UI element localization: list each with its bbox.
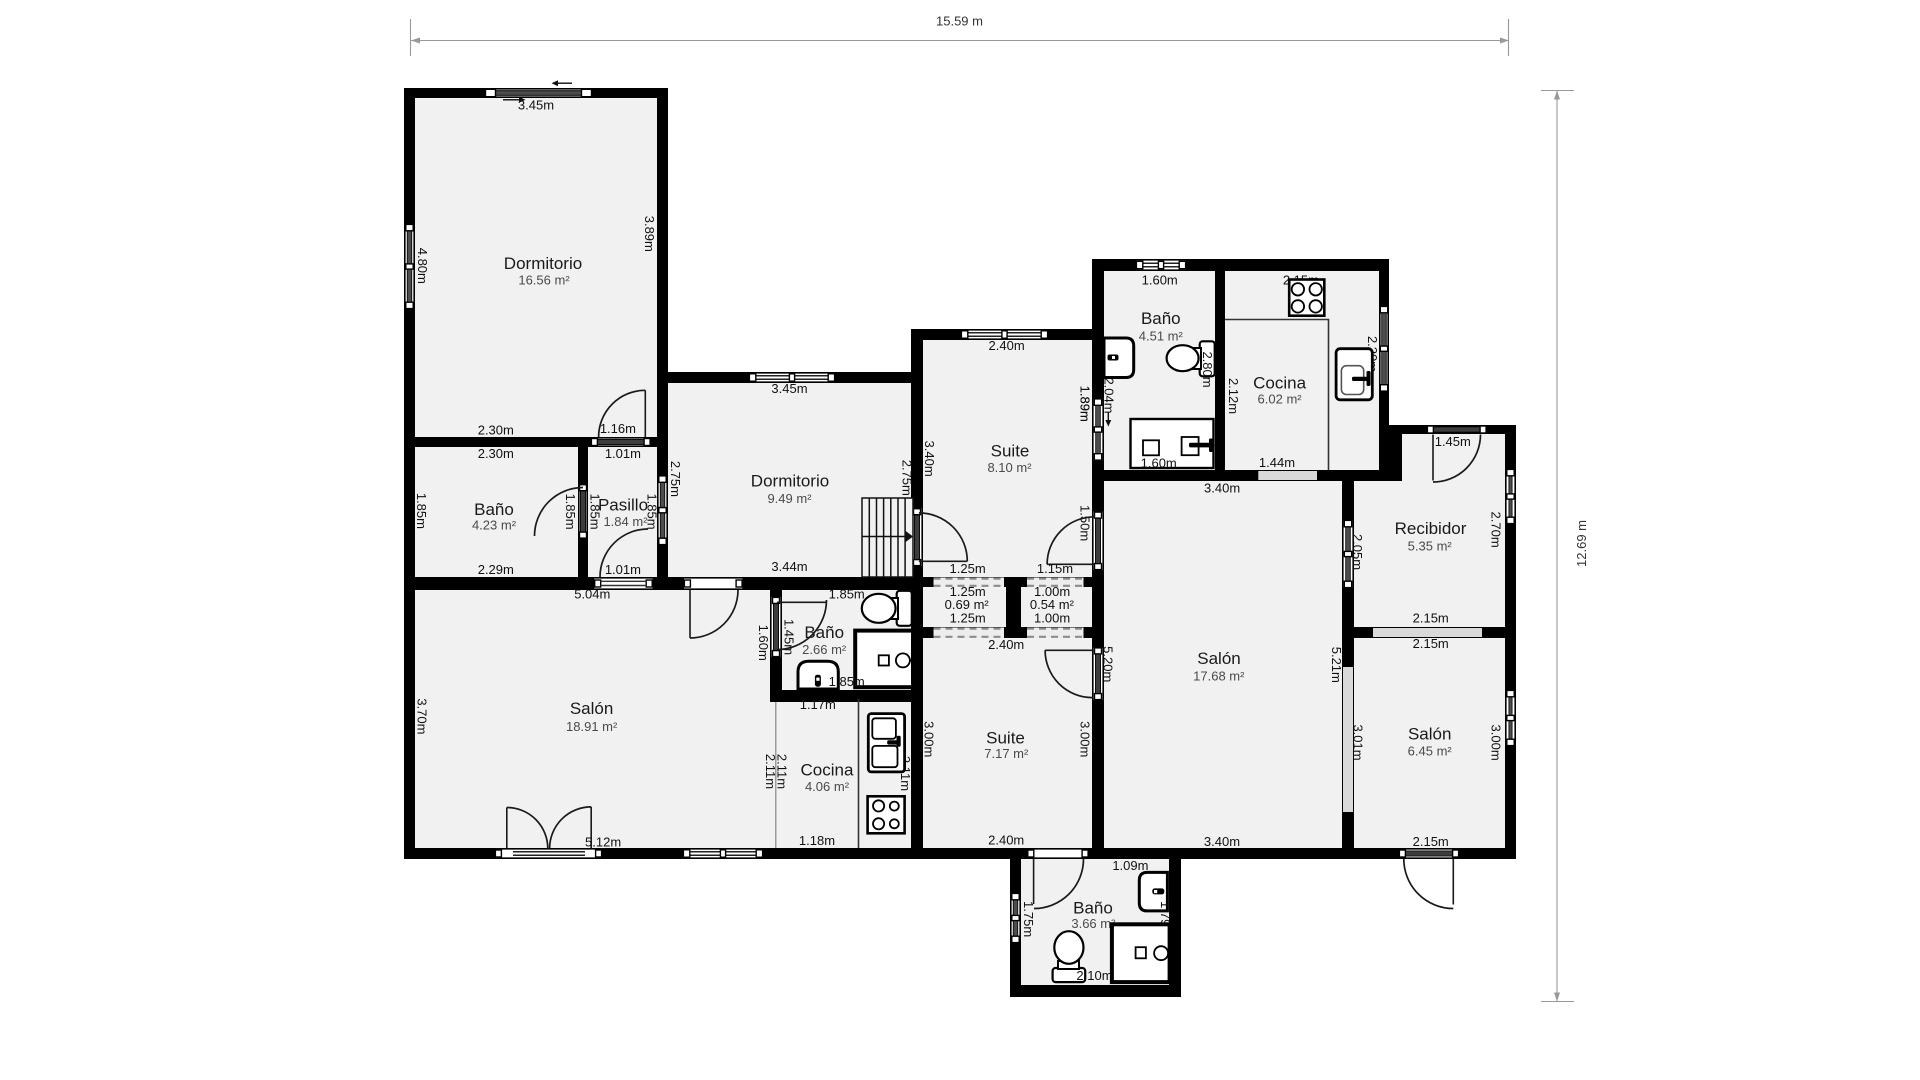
svg-text:1.60m: 1.60m bbox=[756, 625, 771, 661]
svg-text:2.75m: 2.75m bbox=[668, 461, 683, 497]
svg-text:Suite: Suite bbox=[986, 729, 1025, 748]
svg-text:1.75m: 1.75m bbox=[1021, 901, 1036, 937]
svg-text:1.09m: 1.09m bbox=[1112, 858, 1148, 873]
svg-text:1.01m: 1.01m bbox=[605, 446, 641, 461]
svg-text:5.12m: 5.12m bbox=[585, 834, 621, 849]
svg-text:1.85m: 1.85m bbox=[645, 493, 660, 529]
svg-text:3.66 m²: 3.66 m² bbox=[1071, 916, 1116, 931]
svg-text:3.70m: 3.70m bbox=[415, 698, 430, 734]
svg-text:1.60m: 1.60m bbox=[1142, 273, 1178, 288]
svg-text:Pasillo: Pasillo bbox=[598, 496, 648, 515]
svg-text:5.04m: 5.04m bbox=[574, 586, 610, 601]
svg-text:3.00m: 3.00m bbox=[922, 721, 937, 757]
svg-text:2.30m: 2.30m bbox=[478, 423, 514, 438]
svg-text:Baño: Baño bbox=[1141, 309, 1181, 328]
svg-text:2.40m: 2.40m bbox=[989, 338, 1025, 353]
svg-text:3.44m: 3.44m bbox=[771, 559, 807, 574]
svg-text:Salón: Salón bbox=[1197, 649, 1240, 668]
svg-text:Salón: Salón bbox=[1408, 725, 1451, 744]
svg-text:1.00m: 1.00m bbox=[1034, 610, 1070, 625]
svg-text:4.23 m²: 4.23 m² bbox=[472, 518, 517, 533]
svg-text:2.05m: 2.05m bbox=[1350, 534, 1365, 570]
svg-text:1.25m: 1.25m bbox=[950, 610, 986, 625]
svg-text:1.84 m²: 1.84 m² bbox=[603, 514, 648, 529]
svg-text:1.89m: 1.89m bbox=[1078, 386, 1093, 422]
svg-text:Baño: Baño bbox=[804, 623, 844, 642]
svg-text:2.70m: 2.70m bbox=[1489, 512, 1504, 548]
svg-text:2.12m: 2.12m bbox=[1226, 378, 1241, 414]
svg-text:5.21m: 5.21m bbox=[1329, 647, 1344, 683]
svg-text:Suite: Suite bbox=[991, 442, 1030, 461]
svg-text:3.45m: 3.45m bbox=[771, 381, 807, 396]
svg-text:1.44m: 1.44m bbox=[1259, 455, 1295, 470]
svg-text:4.06 m²: 4.06 m² bbox=[805, 779, 850, 794]
svg-text:7.17 m²: 7.17 m² bbox=[984, 746, 1029, 761]
svg-text:Salón: Salón bbox=[570, 699, 613, 718]
svg-text:1.18m: 1.18m bbox=[799, 833, 835, 848]
svg-text:2.04m: 2.04m bbox=[1102, 377, 1117, 413]
svg-text:2.40m: 2.40m bbox=[988, 833, 1024, 848]
svg-text:1.50m: 1.50m bbox=[1078, 505, 1093, 541]
svg-text:6.02 m²: 6.02 m² bbox=[1258, 392, 1303, 407]
svg-text:1.01m: 1.01m bbox=[605, 562, 641, 577]
svg-text:4.80m: 4.80m bbox=[415, 248, 430, 284]
svg-text:17.68 m²: 17.68 m² bbox=[1193, 669, 1245, 684]
svg-text:2.75m: 2.75m bbox=[900, 460, 915, 496]
svg-text:12.69 m: 12.69 m bbox=[1574, 520, 1589, 567]
svg-text:1.85m: 1.85m bbox=[414, 493, 429, 529]
svg-text:3.00m: 3.00m bbox=[1489, 725, 1504, 761]
svg-text:2.10m: 2.10m bbox=[1076, 968, 1112, 983]
svg-text:3.45m: 3.45m bbox=[518, 98, 554, 113]
svg-text:2.30m: 2.30m bbox=[478, 446, 514, 461]
svg-text:2.29m: 2.29m bbox=[478, 562, 514, 577]
svg-text:4.51 m²: 4.51 m² bbox=[1139, 329, 1184, 344]
svg-text:1.25m: 1.25m bbox=[950, 561, 986, 576]
svg-text:1.45m: 1.45m bbox=[1435, 434, 1471, 449]
svg-text:15.59 m: 15.59 m bbox=[936, 14, 983, 29]
svg-text:Dormitorio: Dormitorio bbox=[504, 254, 582, 273]
svg-text:2.40m: 2.40m bbox=[988, 637, 1024, 652]
svg-text:2.15m: 2.15m bbox=[1413, 636, 1449, 651]
svg-text:Baño: Baño bbox=[1073, 899, 1113, 918]
svg-text:1.85m: 1.85m bbox=[829, 586, 865, 601]
svg-text:2.80m: 2.80m bbox=[1200, 351, 1215, 387]
svg-text:3.00m: 3.00m bbox=[1078, 721, 1093, 757]
svg-text:6.45 m²: 6.45 m² bbox=[1408, 744, 1453, 759]
svg-text:2.66 m²: 2.66 m² bbox=[802, 642, 847, 657]
svg-text:5.35 m²: 5.35 m² bbox=[1408, 539, 1453, 554]
svg-text:Cocina: Cocina bbox=[1253, 374, 1306, 393]
svg-text:2.11m: 2.11m bbox=[775, 754, 790, 789]
svg-text:Dormitorio: Dormitorio bbox=[751, 472, 829, 491]
svg-text:2.15m: 2.15m bbox=[1413, 834, 1449, 849]
svg-text:Cocina: Cocina bbox=[801, 761, 854, 780]
svg-text:Baño: Baño bbox=[474, 500, 514, 519]
svg-text:3.40m: 3.40m bbox=[1204, 834, 1240, 849]
svg-text:18.91 m²: 18.91 m² bbox=[566, 719, 618, 734]
svg-text:1.16m: 1.16m bbox=[600, 421, 636, 436]
svg-text:9.49 m²: 9.49 m² bbox=[767, 491, 812, 506]
svg-text:Recibidor: Recibidor bbox=[1395, 519, 1467, 538]
svg-text:1.85m: 1.85m bbox=[588, 493, 603, 529]
svg-text:1.60m: 1.60m bbox=[1141, 456, 1177, 471]
svg-text:3.01m: 3.01m bbox=[1351, 724, 1366, 760]
svg-text:1.15m: 1.15m bbox=[1037, 561, 1073, 576]
svg-text:1.17m: 1.17m bbox=[800, 697, 836, 712]
svg-text:8.10 m²: 8.10 m² bbox=[987, 460, 1032, 475]
svg-text:3.40m: 3.40m bbox=[922, 441, 937, 477]
svg-text:2.15m: 2.15m bbox=[1413, 611, 1449, 626]
svg-text:5.20m: 5.20m bbox=[1101, 646, 1116, 682]
svg-text:1.45m: 1.45m bbox=[782, 619, 797, 655]
svg-text:3.89m: 3.89m bbox=[642, 216, 657, 252]
svg-text:1.85m: 1.85m bbox=[829, 674, 865, 689]
svg-text:16.56 m²: 16.56 m² bbox=[518, 273, 570, 288]
svg-text:1.85m: 1.85m bbox=[563, 493, 578, 529]
svg-text:3.40m: 3.40m bbox=[1204, 481, 1240, 496]
